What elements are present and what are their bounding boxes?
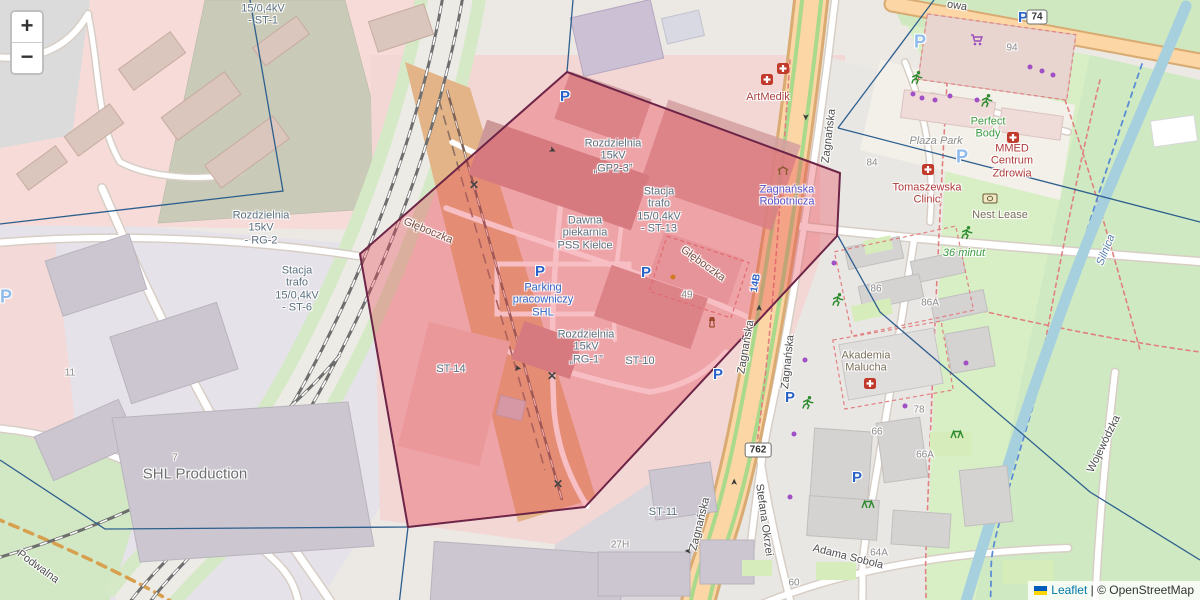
attribution-bar: Leaflet | © OpenStreetMap [1028,581,1200,600]
zoom-out-button[interactable]: − [12,43,42,73]
boundary-line [0,460,408,529]
boundary-line [838,128,1200,222]
boundary-line [567,0,573,72]
boundary-line [838,236,1200,560]
leaflet-map[interactable]: PPPPPPPPPP✕✕✕➤➤➤➤➤➤ 15/0,4kV - ST-1Rozdz… [0,0,1200,600]
openstreetmap-link[interactable]: © OpenStreetMap [1097,583,1194,597]
attribution-separator: | [1091,583,1094,597]
ukraine-flag-icon [1034,586,1047,595]
zoom-control: + − [10,10,44,75]
boundary-line [399,527,408,600]
highlight-polygon[interactable] [360,72,840,527]
boundary-line [838,0,934,128]
overlay-polygons [0,0,1200,600]
zoom-in-button[interactable]: + [12,12,42,43]
leaflet-link[interactable]: Leaflet [1051,583,1087,597]
